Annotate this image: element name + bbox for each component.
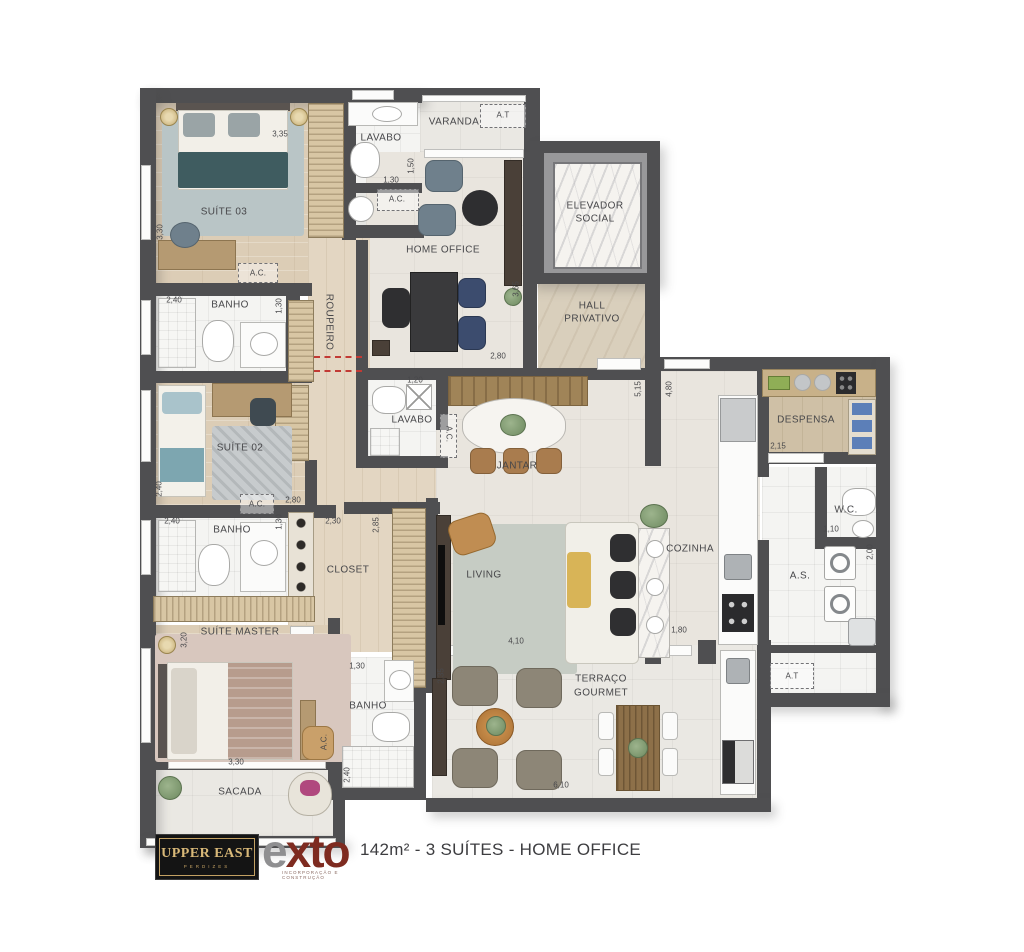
room-label-wc: W.C. bbox=[834, 505, 857, 516]
wall-as-left bbox=[757, 540, 769, 700]
dining-chair bbox=[470, 448, 496, 474]
wall-at-strip-top bbox=[757, 645, 890, 653]
toilet-icon bbox=[350, 142, 380, 178]
shower-banho1 bbox=[158, 298, 196, 368]
bar-stool bbox=[610, 608, 636, 636]
chair-suite03 bbox=[170, 222, 200, 248]
printer-icon bbox=[372, 340, 390, 356]
sink-basin-icon bbox=[852, 520, 874, 538]
grill-icon bbox=[836, 372, 856, 394]
floor-hall-privativo bbox=[538, 284, 646, 368]
bed-headboard bbox=[158, 664, 167, 758]
dining-chair bbox=[536, 448, 562, 474]
lamp-icon bbox=[290, 108, 308, 126]
room-label-home-office: HOME OFFICE bbox=[406, 245, 480, 256]
door-stub-top bbox=[664, 359, 710, 369]
herb-tray-icon bbox=[768, 376, 790, 390]
room-label-suite03: SUÍTE 03 bbox=[201, 207, 248, 218]
bar-cabinet bbox=[432, 678, 447, 776]
island-sink-icon bbox=[646, 540, 664, 558]
wall-banho-master-bottom bbox=[328, 788, 426, 800]
room-label-banho1: BANHO bbox=[211, 300, 249, 311]
room-label-closet: CLOSET bbox=[327, 565, 369, 576]
wall-suite03-bottom bbox=[140, 283, 312, 296]
dim-label: 2,80 bbox=[490, 352, 506, 361]
dim-label: 1,30 bbox=[349, 662, 365, 671]
rug-suite02 bbox=[212, 426, 292, 500]
room-label-at-right: A.T bbox=[785, 672, 798, 681]
room-label-at-varanda: A.T bbox=[496, 111, 509, 120]
dim-label: 2,40 bbox=[155, 481, 164, 497]
cooktop-icon bbox=[722, 594, 754, 632]
pillow bbox=[171, 668, 197, 754]
chaise-cushion bbox=[567, 552, 591, 608]
dim-label: 2,35 bbox=[437, 668, 446, 684]
shower-lavabo2 bbox=[370, 428, 400, 456]
window-suite03 bbox=[141, 165, 151, 240]
window-lavabo-top bbox=[352, 90, 394, 100]
lamp-icon bbox=[158, 636, 176, 654]
dim-label: 3,30 bbox=[228, 758, 244, 767]
armchair-office bbox=[418, 204, 456, 236]
dim-label: 4,80 bbox=[665, 381, 674, 397]
sink-basin-icon bbox=[250, 332, 278, 356]
fridge-icon bbox=[720, 398, 756, 442]
terrace-chair bbox=[662, 748, 678, 776]
dim-label: 1,80 bbox=[671, 626, 687, 635]
pantry-shelf bbox=[848, 399, 876, 455]
red-dashed-line bbox=[314, 370, 362, 372]
wall-corridor-office bbox=[356, 240, 368, 370]
toilet-icon bbox=[202, 320, 234, 362]
room-label-ac-suite02: A.C. bbox=[249, 500, 265, 509]
kitchen-sink-icon bbox=[724, 554, 752, 580]
dim-label: 1,20 bbox=[407, 376, 423, 385]
dim-label: 1,50 bbox=[407, 158, 416, 174]
room-label-ac-master: A.C. bbox=[320, 734, 329, 750]
sink-basin-icon bbox=[250, 540, 278, 566]
room-label-as: A.S. bbox=[790, 571, 811, 582]
shower-banho-master bbox=[342, 746, 414, 788]
dim-label: 2,40 bbox=[164, 517, 180, 526]
island-sink-icon bbox=[646, 578, 664, 596]
pillow bbox=[300, 780, 320, 796]
dim-label: 2,30 bbox=[325, 517, 341, 526]
room-label-roupeiro: ROUPEIRO bbox=[324, 294, 335, 351]
office-chair bbox=[382, 288, 410, 328]
sink-basin-icon bbox=[372, 106, 402, 122]
bed-blanket bbox=[178, 152, 288, 188]
washer-icon bbox=[824, 586, 856, 622]
room-label-jantar: JANTAR bbox=[497, 461, 538, 472]
dim-label: 2,85 bbox=[372, 517, 381, 533]
round-coffee-table bbox=[462, 190, 498, 226]
plant-icon bbox=[486, 716, 506, 736]
room-label-terraco-1: TERRAÇO bbox=[575, 674, 627, 685]
room-label-sacada: SACADA bbox=[218, 787, 262, 798]
toilet-icon bbox=[372, 712, 410, 742]
room-label-lavabo-top: LAVABO bbox=[361, 133, 402, 144]
room-label-ac-suite03: A.C. bbox=[250, 269, 266, 278]
shower-banho2 bbox=[158, 520, 196, 592]
apartment-floor-plan: SUÍTE 03 LAVABO A.C. VARANDA A.T HOME OF… bbox=[0, 0, 1024, 952]
office-shelf bbox=[504, 160, 522, 286]
pillow bbox=[183, 113, 215, 137]
terrace-chair bbox=[662, 712, 678, 740]
wardrobe-master bbox=[153, 596, 315, 622]
room-label-varanda: VARANDA bbox=[429, 117, 479, 128]
plant-icon bbox=[628, 738, 648, 758]
wall-bottom-right-block bbox=[757, 693, 890, 707]
dim-label: 5,15 bbox=[634, 381, 643, 397]
red-dashed-line bbox=[314, 356, 362, 358]
room-label-cozinha: COZINHA bbox=[666, 544, 714, 555]
dim-label: 3,20 bbox=[180, 632, 189, 648]
dim-label: 3,35 bbox=[272, 130, 288, 139]
guest-chair bbox=[458, 316, 486, 350]
plan-caption: 142m² - 3 SUÍTES - HOME OFFICE bbox=[360, 840, 641, 860]
wall-banho1-bottom bbox=[140, 371, 312, 383]
room-label-suite-master: SUÍTE MASTER bbox=[201, 627, 280, 638]
shoe-cabinet bbox=[288, 512, 314, 598]
dim-label: 3,30 bbox=[156, 224, 165, 240]
bar-stool bbox=[610, 571, 636, 599]
island-sink-icon bbox=[646, 616, 664, 634]
sink-basin-icon bbox=[389, 670, 411, 690]
wardrobe-suite03 bbox=[308, 103, 344, 238]
wall-niche-bottom bbox=[342, 225, 424, 238]
room-label-elevador-2: SOCIAL bbox=[575, 214, 614, 225]
dim-label: 2,80 bbox=[285, 496, 301, 505]
room-label-lavabo2: LAVABO bbox=[392, 415, 433, 426]
dim-label: 1,30 bbox=[275, 514, 284, 530]
room-label-despensa: DESPENSA bbox=[777, 415, 835, 426]
dim-label: 2,40 bbox=[166, 296, 182, 305]
window-suite-master bbox=[141, 648, 151, 743]
chair-master bbox=[302, 726, 334, 760]
upper-east-logo-frame: UPPER EAST PERDIZES bbox=[159, 838, 255, 876]
washer-icon bbox=[824, 546, 856, 580]
plant-icon bbox=[158, 776, 182, 800]
pillow bbox=[228, 113, 260, 137]
terrace-armchair bbox=[516, 668, 562, 708]
room-label-hall-1: HALL bbox=[579, 301, 606, 312]
desk-suite03 bbox=[158, 240, 236, 270]
room-label-banho2: BANHO bbox=[213, 525, 251, 536]
varanda-door bbox=[424, 149, 524, 158]
toilet-icon bbox=[198, 544, 230, 586]
room-label-ac-lavabo: A.C. bbox=[389, 195, 405, 204]
terrace-sink-icon bbox=[726, 658, 750, 684]
despensa-opening bbox=[768, 453, 824, 463]
wall-terraco-stub bbox=[698, 640, 716, 664]
room-label-terraco-2: GOURMET bbox=[574, 688, 628, 699]
guest-chair bbox=[458, 278, 486, 308]
bed-blanket bbox=[160, 448, 204, 482]
dim-label: 2,40 bbox=[343, 767, 352, 783]
tv-icon bbox=[438, 545, 445, 625]
wall-stub-jantar-cozinha bbox=[645, 371, 661, 466]
terrace-chair bbox=[598, 712, 614, 740]
room-label-ac-lavabo2: A.C. bbox=[445, 426, 454, 442]
dim-label: 1,30 bbox=[275, 298, 284, 314]
roupeiro-cabinet bbox=[288, 300, 314, 382]
dim-label: 3,65 bbox=[512, 281, 521, 297]
dim-label: 4,10 bbox=[508, 637, 524, 646]
upper-east-logo-district: PERDIZES bbox=[184, 864, 231, 869]
toilet-icon bbox=[372, 386, 406, 414]
window-banho1 bbox=[141, 300, 151, 355]
round-burner-icon bbox=[814, 374, 831, 391]
dim-label: 2,00 bbox=[866, 544, 875, 560]
room-label-living: LIVING bbox=[466, 570, 501, 581]
window-banho2 bbox=[141, 520, 151, 575]
round-burner-icon bbox=[794, 374, 811, 391]
window-suite02 bbox=[141, 390, 151, 462]
wall-lavabo2-bottom bbox=[356, 456, 448, 468]
room-label-suite02: SUÍTE 02 bbox=[217, 443, 264, 454]
upper-east-logo-text: UPPER EAST bbox=[161, 846, 253, 862]
wall-office-right bbox=[523, 152, 537, 368]
room-label-banho-master: BANHO bbox=[349, 701, 387, 712]
varanda-rail bbox=[422, 95, 526, 102]
wall-lavabo2-left bbox=[356, 378, 368, 466]
plant-icon bbox=[640, 504, 668, 528]
office-desk bbox=[410, 272, 458, 352]
plant-icon bbox=[500, 414, 526, 436]
footer: UPPER EAST PERDIZES exto INCORPORAÇÃO E … bbox=[0, 826, 1024, 906]
chair-suite02 bbox=[250, 398, 276, 426]
bbq-appliance-icon bbox=[722, 740, 754, 784]
dim-label: 1,10 bbox=[823, 525, 839, 534]
laundry-sink-icon bbox=[848, 618, 876, 646]
pillow bbox=[162, 392, 202, 414]
wall-terraco-bottom bbox=[426, 798, 771, 812]
dim-label: 6,10 bbox=[553, 781, 569, 790]
bed-blanket bbox=[228, 663, 292, 759]
dim-label: 1,30 bbox=[383, 176, 399, 185]
armchair-office bbox=[425, 160, 463, 192]
water-heater-icon bbox=[348, 196, 374, 222]
terrace-chair bbox=[598, 748, 614, 776]
niche-icon bbox=[406, 384, 432, 410]
room-label-elevador-1: ELEVADOR bbox=[567, 201, 624, 212]
dim-label: 2,15 bbox=[770, 442, 786, 451]
upper-east-logo: UPPER EAST PERDIZES bbox=[155, 834, 259, 880]
terrace-armchair bbox=[452, 748, 498, 788]
bar-stool bbox=[610, 534, 636, 562]
room-label-hall-2: PRIVATIVO bbox=[564, 314, 619, 325]
entry-door-opening bbox=[597, 358, 641, 370]
terrace-armchair bbox=[452, 666, 498, 706]
